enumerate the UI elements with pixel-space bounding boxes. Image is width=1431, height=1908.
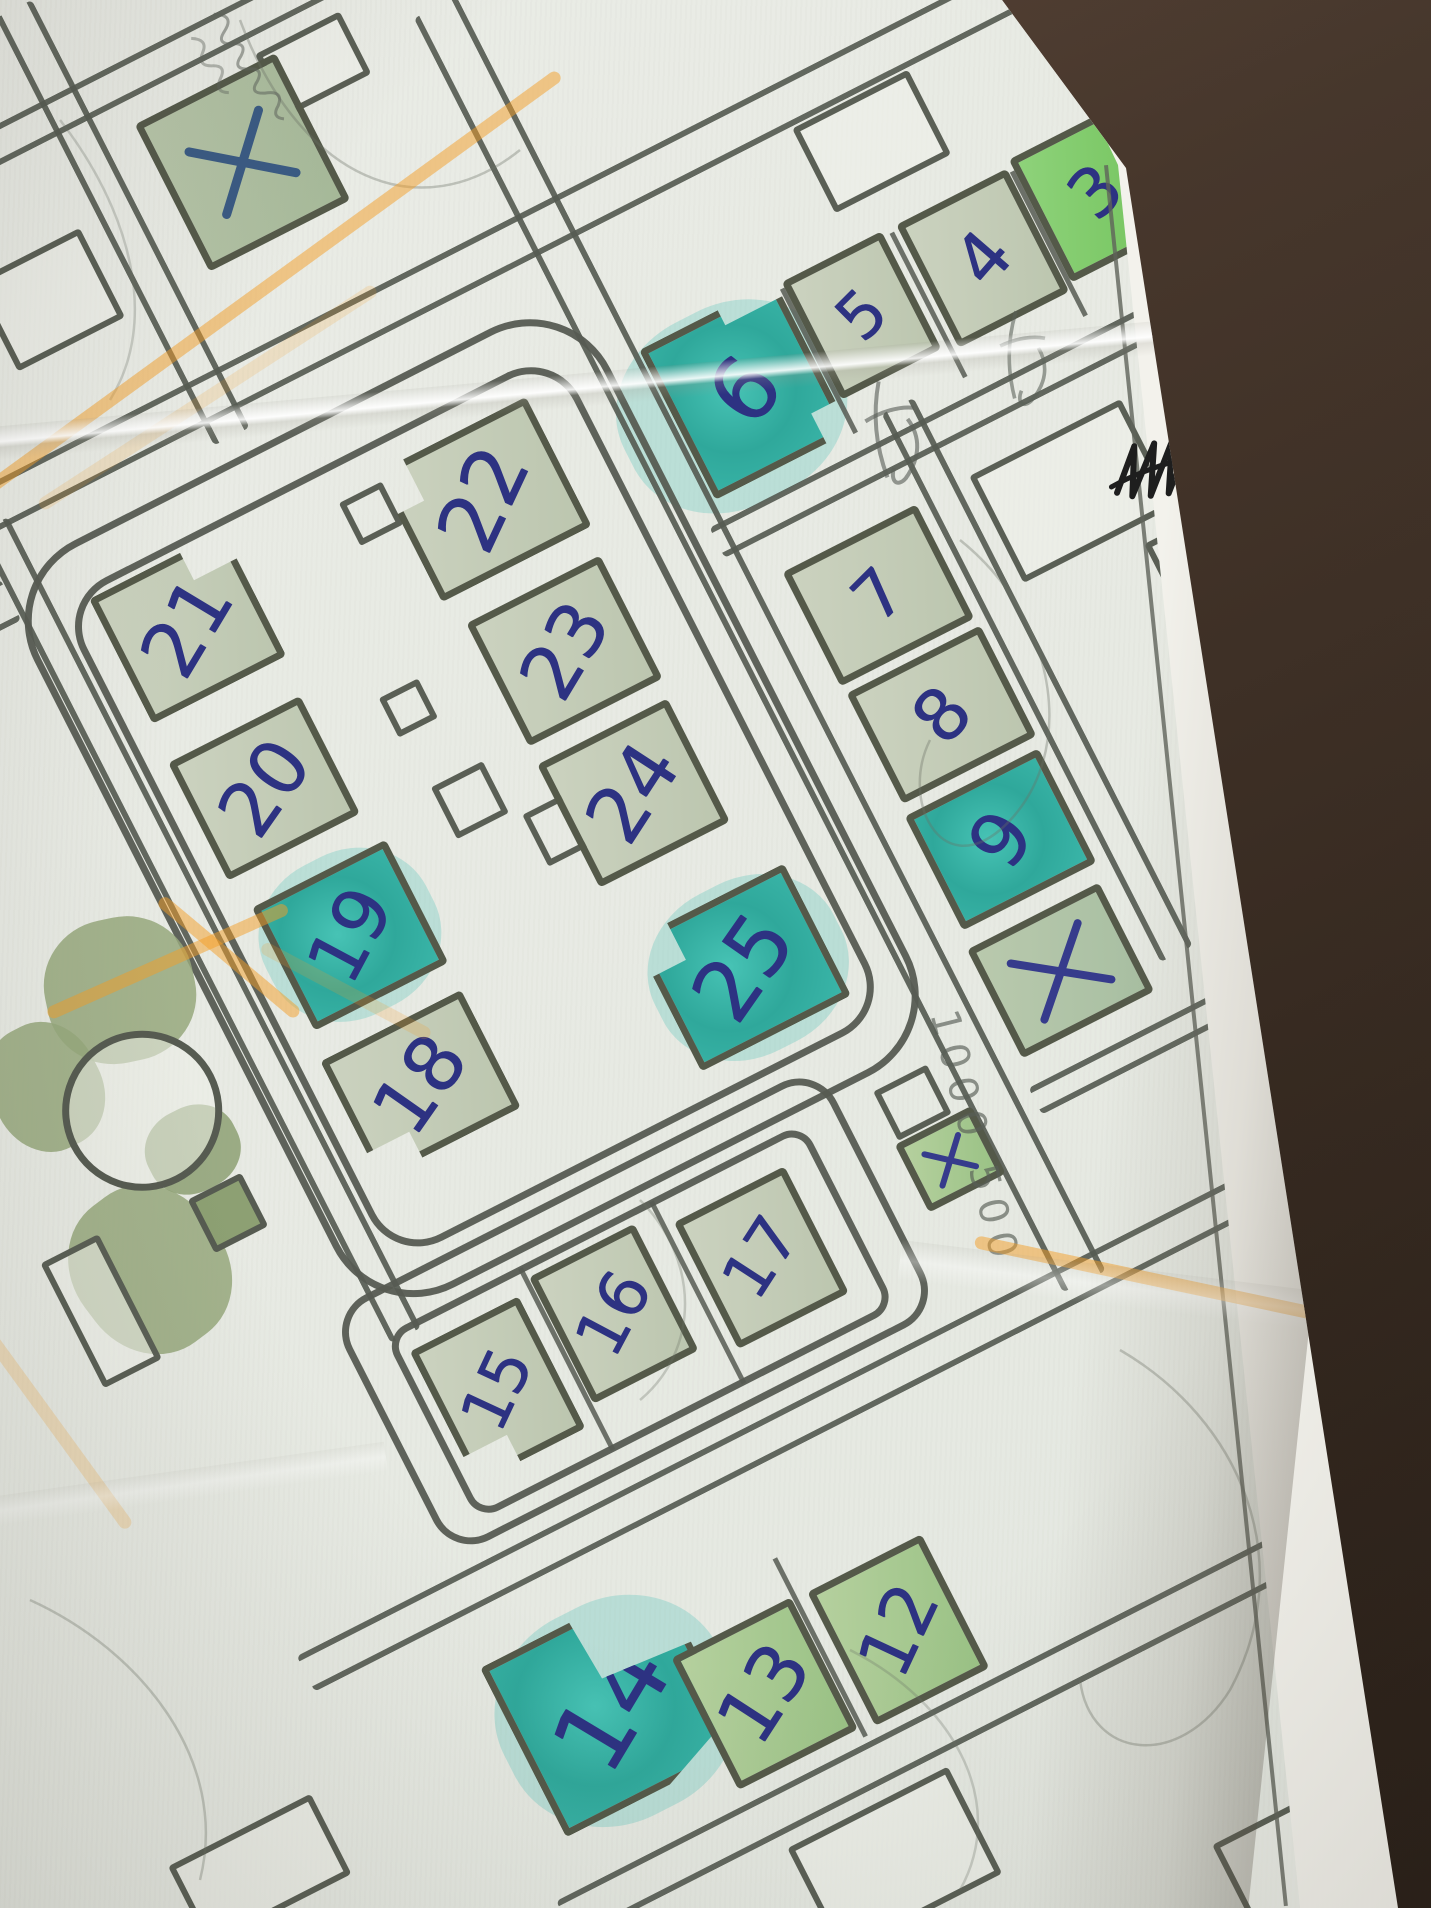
paper-sheet: 21 20 19 18 22 23 24 25 7 xyxy=(0,0,1431,1908)
orange-highlighter-stroke xyxy=(1346,1265,1416,1628)
pencil-note xyxy=(846,363,960,493)
pen-x-mark xyxy=(1150,178,1360,358)
road xyxy=(1121,0,1431,493)
photo-of-marked-street-map: { "map": { "buildings": { "b3": {"label"… xyxy=(0,0,1431,1908)
